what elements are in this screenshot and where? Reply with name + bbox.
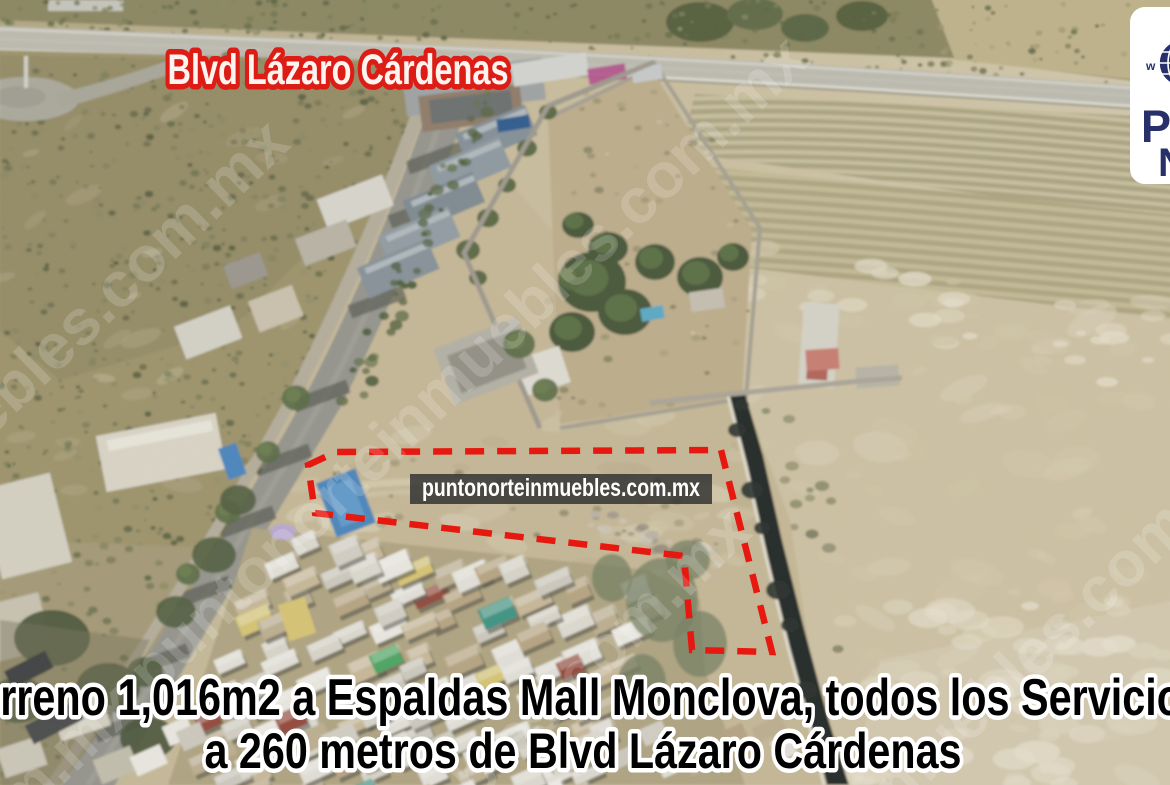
svg-text:Blvd Lázaro Cárdenas: Blvd Lázaro Cárdenas bbox=[168, 46, 509, 94]
svg-text:puntonorteinmuebles.com.mx: puntonorteinmuebles.com.mx bbox=[422, 474, 700, 502]
svg-text:w: w bbox=[1145, 59, 1156, 73]
svg-text:N: N bbox=[1158, 141, 1170, 185]
svg-text:a 260 metros de Blvd Lázaro Cá: a 260 metros de Blvd Lázaro Cárdenas bbox=[205, 723, 962, 779]
svg-text:Terreno 1,016m2 a Espaldas Mal: Terreno 1,016m2 a Espaldas Mall Monclova… bbox=[0, 669, 1170, 727]
